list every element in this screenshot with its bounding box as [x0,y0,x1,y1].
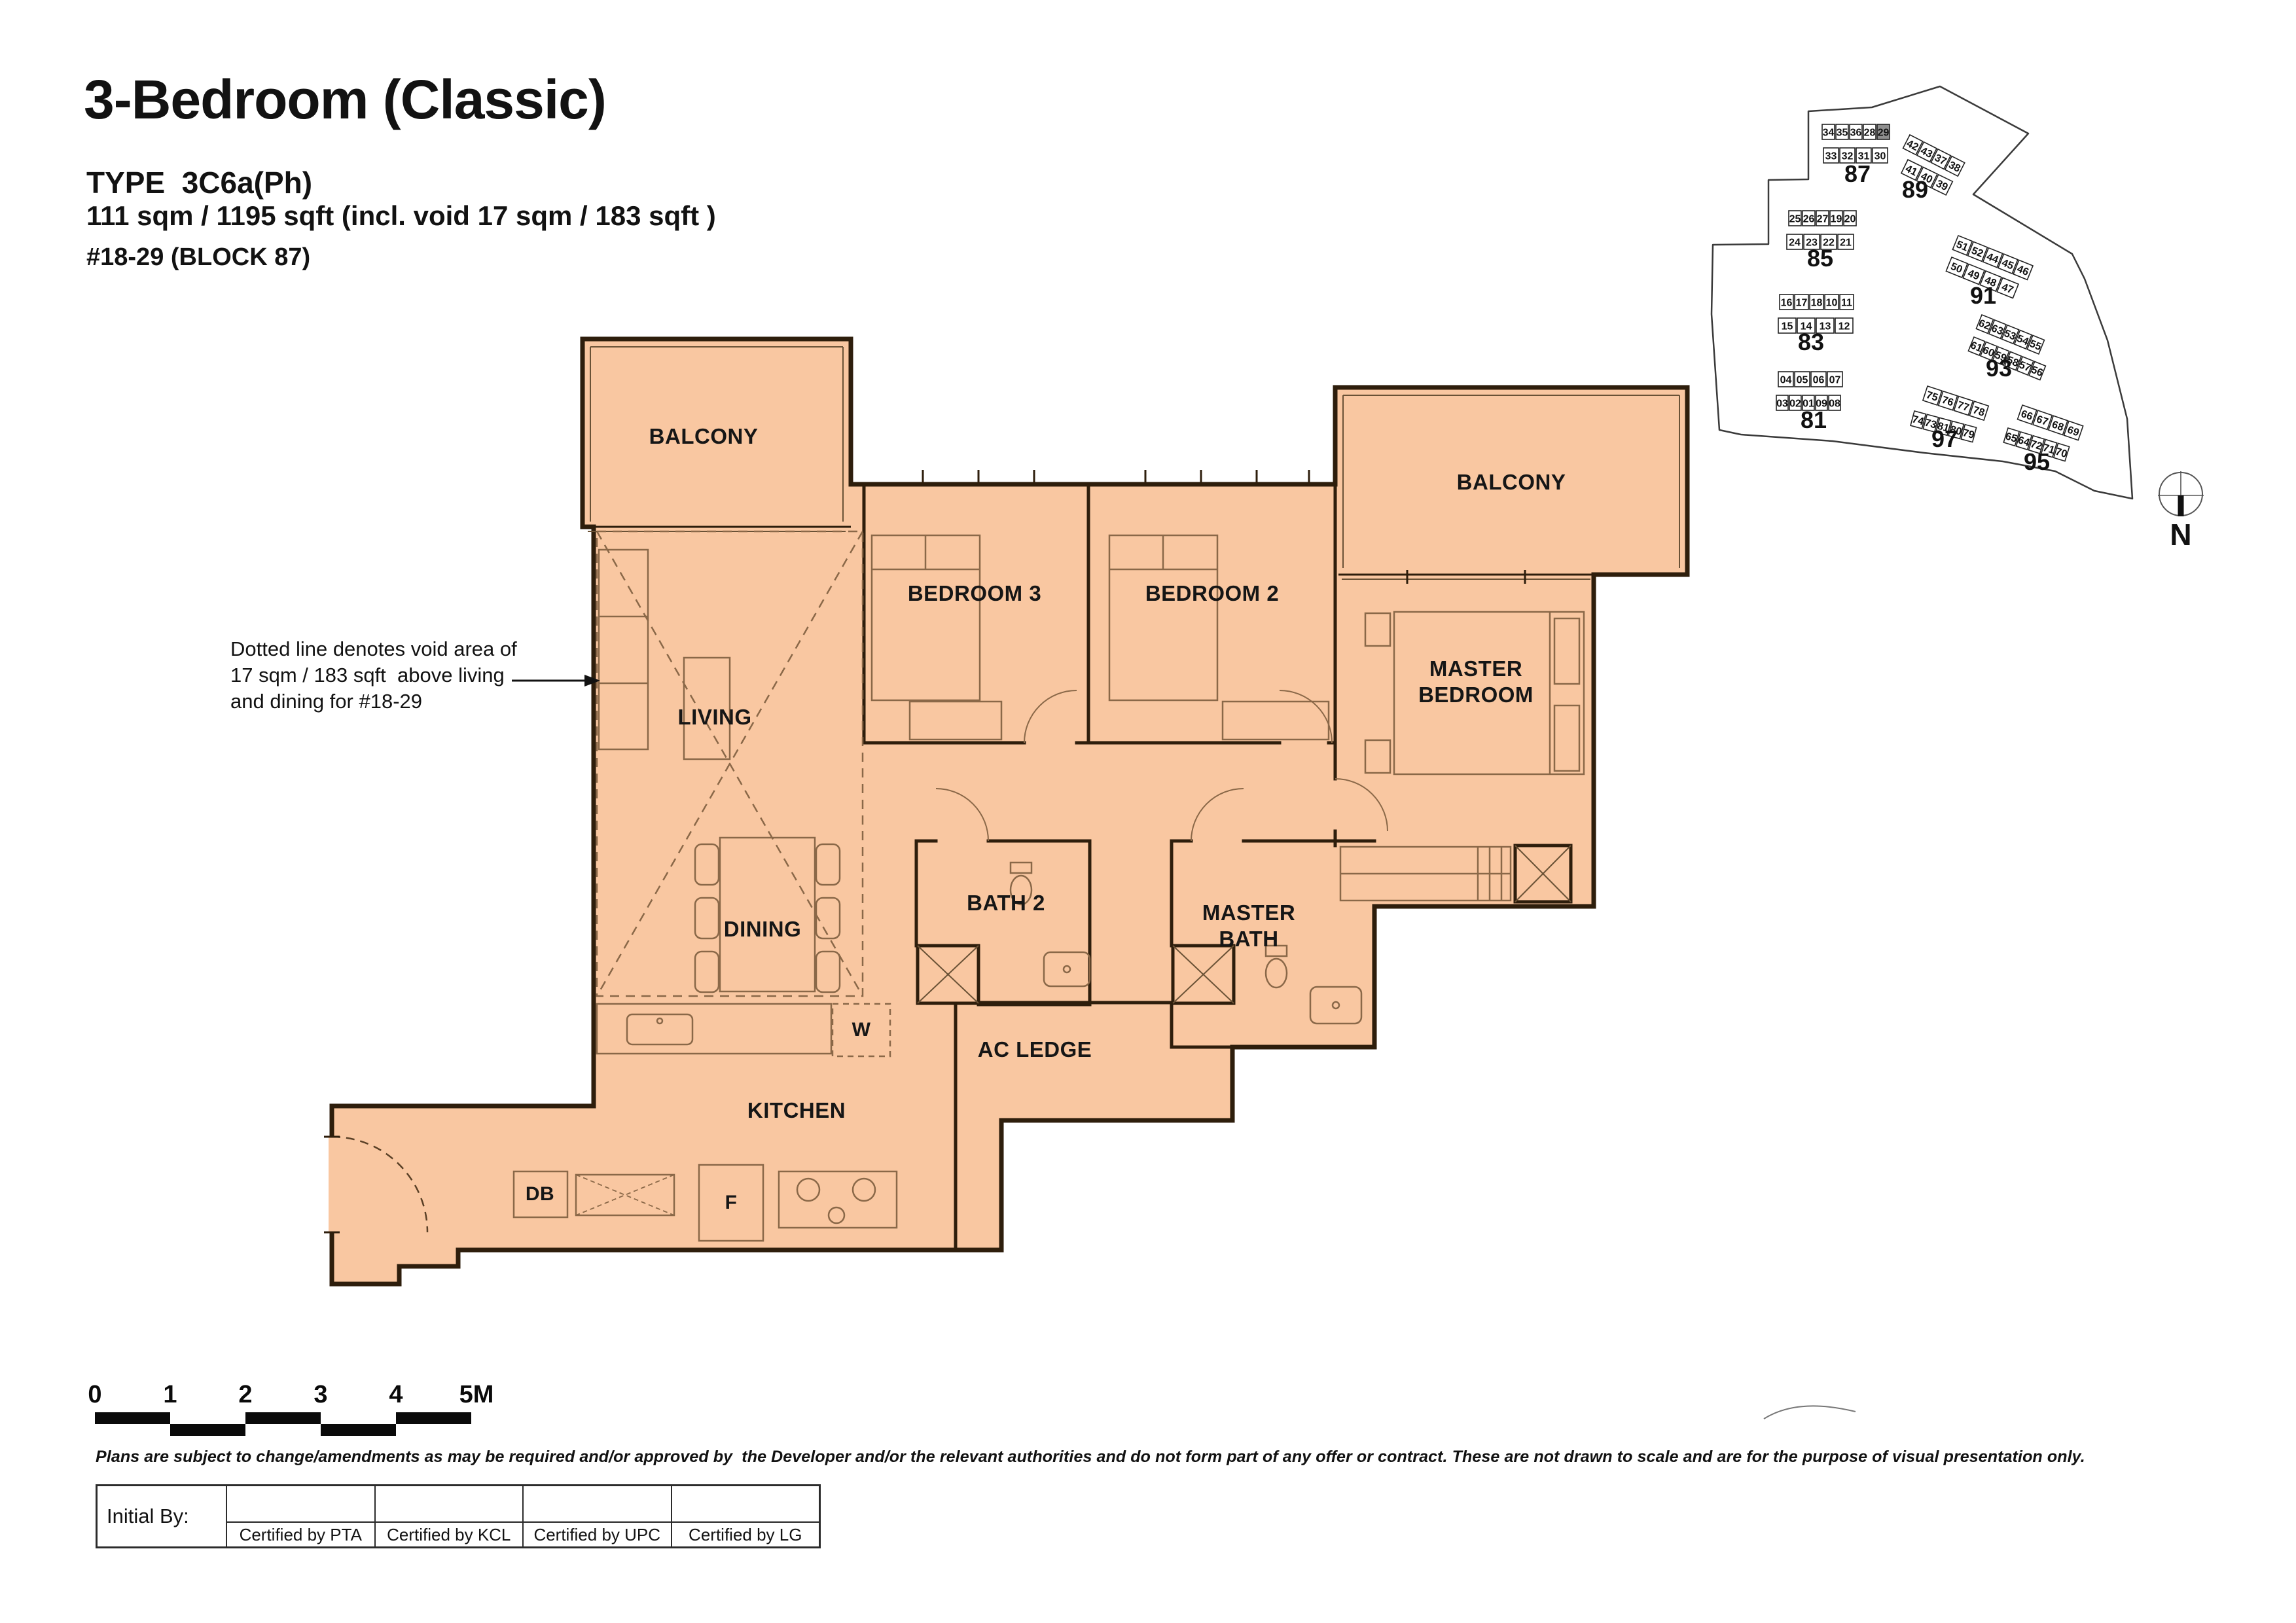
site-unit-number: 30 [1874,151,1886,162]
certified-by-label: Certified by UPC [524,1523,671,1546]
site-blocks: 3435362829333231308742433738414039892526… [1776,124,2083,475]
disclaimer-text: Plans are subject to change/amendments a… [96,1448,2085,1467]
certified-by-label: Certified by LG [672,1523,819,1546]
initial-signature-cell [376,1486,523,1523]
site-block-87: 34353628293332313087 [1822,124,1890,187]
floorplan-page: { "header": { "title": "3-Bedroom (Class… [0,0,2296,1623]
site-unit-number: 20 [1844,214,1856,225]
unit-range-label: #18-29 (BLOCK 87) [86,243,310,272]
site-unit-number: 29 [1878,128,1890,139]
scale-number: 1 [163,1381,177,1408]
scale-number: 4 [389,1381,403,1408]
page-curl-line [1761,1397,1859,1427]
site-unit-number: 17 [1796,298,1808,309]
site-unit-number: 26 [1803,214,1815,225]
site-unit-number: 25 [1789,214,1801,225]
site-block-label: 91 [1970,282,1996,309]
site-unit-number: 05 [1797,375,1808,386]
site-block-91: 51524445465049484791 [1946,236,2033,309]
site-block-label: 83 [1798,329,1824,355]
cert-columns: Certified by PTACertified by KCLCertifie… [227,1486,819,1546]
site-block-label: 89 [1902,176,1928,203]
site-block-83: 16171810111514131283 [1778,294,1854,355]
site-block-label: 93 [1986,355,2012,382]
site-block-95: 66676869656472717095 [2003,405,2083,475]
site-unit-number: 15 [1782,321,1793,332]
north-compass: N [2158,471,2204,552]
scale-bar-numbers: 012345M [88,1381,493,1408]
site-unit-number: 06 [1813,375,1825,386]
site-block-85: 25262719202423222185 [1787,211,1856,272]
cert-column: Certified by UPC [524,1486,672,1546]
initial-signature-cell [524,1486,671,1523]
initial-by-label: Initial By: [107,1505,189,1528]
site-unit-number: 21 [1840,238,1852,249]
site-block-label: 85 [1807,245,1833,272]
site-unit-number: 02 [1789,399,1801,410]
site-unit-number: 04 [1780,375,1792,386]
site-unit-number: 11 [1841,298,1852,309]
scale-bar: 012345M [72,1371,517,1443]
site-map: 3435362829333231308742433738414039892526… [1702,65,2291,602]
cert-column: Certified by LG [672,1486,819,1546]
scale-bar-segments [95,1412,471,1436]
site-unit-number: 08 [1829,399,1840,410]
site-unit-number: 34 [1823,128,1835,139]
scale-number: 5M [459,1381,494,1408]
scale-number: 2 [238,1381,252,1408]
site-unit-number: 35 [1837,128,1848,139]
site-unit-number: 03 [1776,399,1788,410]
unit-area-label: 111 sqm / 1195 sqft (incl. void 17 sqm /… [86,200,716,232]
site-unit-number: 16 [1781,298,1793,309]
site-unit-number: 10 [1826,298,1838,309]
site-block-label: 81 [1801,406,1827,433]
site-unit-number: 28 [1864,128,1876,139]
certified-by-label: Certified by PTA [227,1523,374,1546]
initial-table: Initial By: Certified by PTACertified by… [96,1484,821,1548]
site-unit-number: 33 [1825,151,1837,162]
site-block-89: 4243373841403989 [1901,135,1965,203]
site-unit-number: 18 [1811,298,1823,309]
site-unit-number: 12 [1839,321,1850,332]
void-note-arrow [512,675,600,687]
scale-number: 3 [314,1381,327,1408]
site-block-label: 87 [1844,160,1871,187]
certified-by-label: Certified by KCL [376,1523,523,1546]
site-unit-number: 19 [1831,214,1842,225]
site-block-label: 95 [2024,448,2050,475]
site-unit-number: 36 [1850,128,1862,139]
site-block-97: 75767778747381807997 [1910,386,1988,452]
cert-column: Certified by KCL [376,1486,524,1546]
cert-column: Certified by PTA [227,1486,376,1546]
site-unit-number: 07 [1829,375,1841,386]
site-block-93: 626353545561605958575693 [1968,315,2045,382]
initial-signature-cell [672,1486,819,1523]
site-block-label: 97 [1931,425,1958,452]
initial-by-cell: Initial By: [98,1486,227,1546]
floor-plan-drawing [288,288,1728,1309]
site-block-81: 04050607030201090881 [1776,372,1842,433]
site-unit-number: 24 [1789,238,1801,249]
scale-number: 0 [88,1381,101,1408]
unit-footprint [332,339,1687,1284]
initial-signature-cell [227,1486,374,1523]
unit-type-label: TYPE 3C6a(Ph) [86,165,312,200]
north-label: N [2170,518,2191,552]
page-title: 3-Bedroom (Classic) [84,68,606,132]
site-unit-number: 27 [1817,214,1829,225]
